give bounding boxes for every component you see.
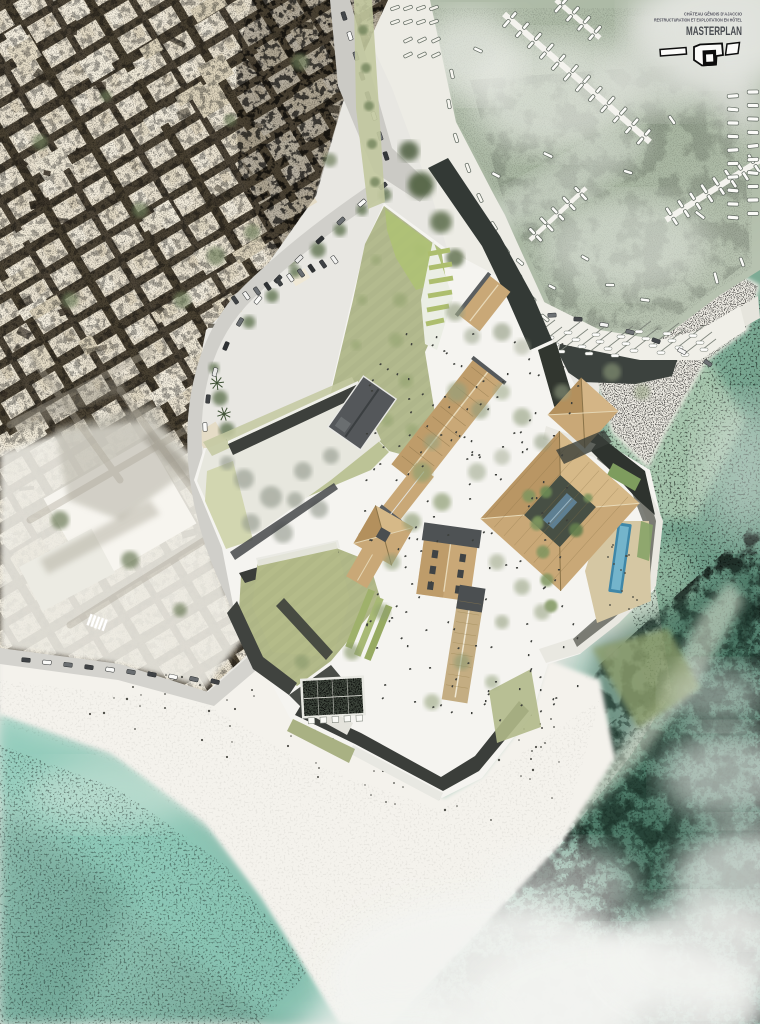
svg-text:CHÂTEAU GÊNOIS D’AJACCIO: CHÂTEAU GÊNOIS D’AJACCIO xyxy=(684,10,742,17)
svg-text:MASTERPLAN: MASTERPLAN xyxy=(686,26,742,38)
svg-text:RESTRUCTURATION ET EXPLOITATIO: RESTRUCTURATION ET EXPLOITATION EN HÔTEL xyxy=(654,16,742,23)
